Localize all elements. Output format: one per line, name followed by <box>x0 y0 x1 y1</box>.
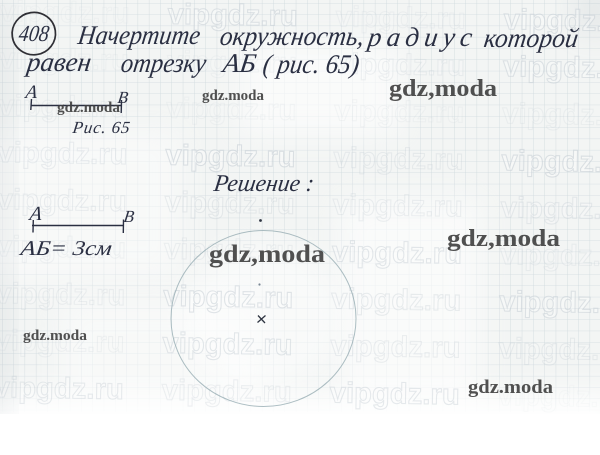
svg-text:Решение :: Решение : <box>211 171 316 197</box>
svg-text:vipgdz.ru: vipgdz.ru <box>332 236 462 270</box>
svg-text:vipgdz.ru: vipgdz.ru <box>501 145 600 179</box>
svg-text:которой: которой <box>482 23 581 53</box>
svg-text:vipgdz.ru: vipgdz.ru <box>330 330 460 364</box>
svg-text:gdz.moda: gdz.moda <box>468 378 553 398</box>
svg-text:окружность,: окружность, <box>218 21 366 51</box>
svg-text:отрезку: отрезку <box>119 48 209 78</box>
svg-text:gdz.moda: gdz.moda <box>202 88 264 104</box>
svg-text:vipgdz.ru: vipgdz.ru <box>498 333 600 367</box>
svg-text:vipgdz.ru: vipgdz.ru <box>162 328 292 362</box>
svg-text:gdz.moda: gdz.moda <box>23 328 88 344</box>
svg-text:vipgdz.ru: vipgdz.ru <box>329 377 459 411</box>
svg-text:gdz,moda: gdz,moda <box>209 241 326 268</box>
svg-text:АБ: АБ <box>219 48 258 78</box>
svg-text:vipgdz.ru: vipgdz.ru <box>502 98 600 132</box>
svg-text:vipgdz.ru: vipgdz.ru <box>332 189 462 223</box>
svg-text:gdz,moda: gdz,moda <box>389 76 497 102</box>
svg-text:( рис. 65): ( рис. 65) <box>261 49 361 79</box>
svg-text:равен: равен <box>23 47 93 77</box>
svg-text:vipgdz.ru: vipgdz.ru <box>333 142 463 176</box>
svg-text:vipgdz.ru: vipgdz.ru <box>503 51 600 85</box>
svg-text:Начертите: Начертите <box>75 20 202 50</box>
svg-text:vipgdz.ru: vipgdz.ru <box>499 286 600 320</box>
svg-text:vipgdz.ru: vipgdz.ru <box>163 281 293 315</box>
svg-text:gdz.moda: gdz.moda <box>57 100 121 116</box>
svg-text:408: 408 <box>17 20 51 46</box>
svg-text:gdz,moda: gdz,moda <box>447 226 560 252</box>
svg-text:vipgdz.ru: vipgdz.ru <box>165 140 295 174</box>
svg-text:vipgdz.ru: vipgdz.ru <box>0 372 124 406</box>
svg-text:vipgdz.ru: vipgdz.ru <box>0 137 128 171</box>
svg-text:vipgdz.ru: vipgdz.ru <box>0 184 127 218</box>
svg-text:vipgdz.ru: vipgdz.ru <box>161 375 291 409</box>
svg-text:АБ= 3см: АБ= 3см <box>17 236 114 260</box>
svg-text:Рис. 65: Рис. 65 <box>70 118 131 137</box>
svg-text:vipgdz.ru: vipgdz.ru <box>0 278 126 312</box>
svg-text:vipgdz.ru: vipgdz.ru <box>500 192 600 226</box>
